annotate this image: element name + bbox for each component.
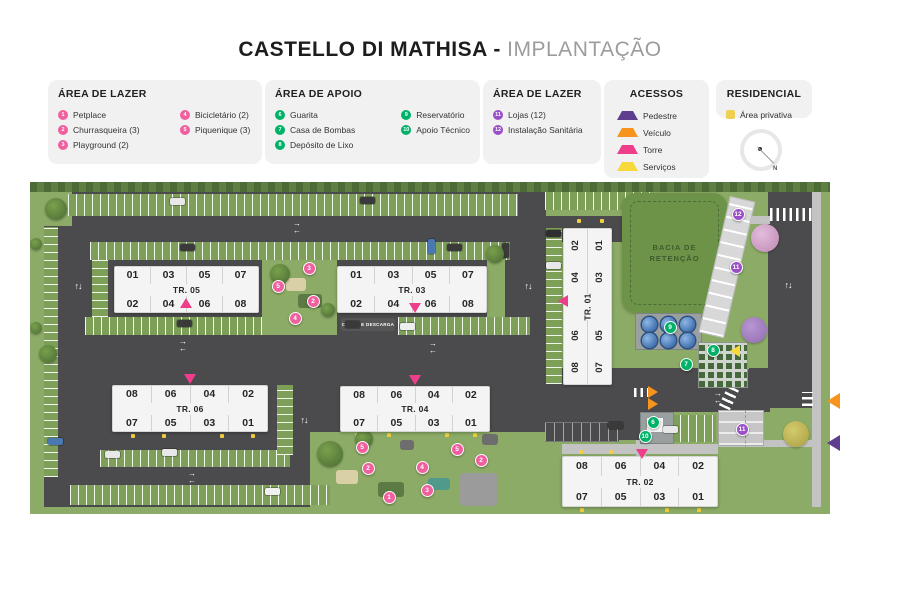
page: { "title": {"main": "CASTELLO DI MATHISA… [0,0,900,600]
car [447,244,462,251]
unit-cell: 06 [187,296,223,313]
legend-title: ÁREA DE APOIO [275,88,470,100]
parking-row [85,317,262,335]
legend-items: 1Petplace2Churrasqueira (3)3Playground (… [58,107,252,152]
legend-item-label: Pedestre [643,111,677,121]
parking-row [398,317,530,335]
building-label: TR. 05 [115,284,258,296]
car [48,438,63,445]
car [105,451,120,458]
unit-cell: 06 [602,457,641,476]
legend-item: Torre [614,141,699,158]
legend-column: 1Petplace2Churrasqueira (3)3Playground (… [58,107,176,152]
legend-item-label: Reservatório [416,110,464,120]
access-veiculo-triangle [648,386,658,398]
legend-number-badge: 6 [275,110,285,120]
access-torre-triangle [409,303,421,313]
unit-cell: 04 [641,457,680,476]
legend-item-label: Churrasqueira (3) [73,125,140,135]
unit-cell: 01 [229,415,267,432]
map-marker-10: 10 [639,430,652,443]
service-crates [698,342,748,388]
unit-cell: 05 [602,488,641,507]
legend-column: 4Bicicletário (2)5Piquenique (3) [180,107,250,152]
unit-cell: 06 [152,386,191,403]
map-marker-8: 8 [707,344,720,357]
map-marker-5: 5 [451,443,464,456]
legend-item-label: Piquenique (3) [195,125,250,135]
crosswalk [802,392,813,406]
parking-row [100,450,290,467]
legend-item: Pedestre [614,107,699,124]
legend-item-label: Torre [643,145,662,155]
title-separator: - [487,38,507,61]
road-direction-arrow: →← [289,221,305,235]
unit-cell: 07 [341,415,378,431]
tree [783,421,809,447]
unit-cell: 02 [679,457,717,476]
map-marker-9: 9 [664,321,677,334]
sidewalk [812,182,821,514]
tree [39,345,57,363]
unit-cell: 08 [450,296,486,313]
legend-item-label: Playground (2) [73,140,129,150]
unit-cell: 01 [115,267,151,284]
building-label: TR. 03 [338,284,486,296]
page-title: CASTELLO DI MATHISA - IMPLANTAÇÃO [0,38,900,62]
legend-number-badge: 10 [401,125,411,135]
legend-area-de-apoio: ÁREA DE APOIO 6Guarita7Casa de Bombas8De… [265,80,480,164]
car [162,449,177,456]
legend-number-badge: 12 [493,125,503,135]
unit-cell: 08 [223,296,258,313]
unit-entry-dot [697,508,701,512]
map-marker-7: 7 [680,358,693,371]
building-row-top: 01030507 [338,267,486,284]
unit-number: 01 [594,240,605,251]
tree [45,198,67,220]
car [180,244,195,251]
legend-item-label: Área privativa [740,110,792,120]
unit-entry-dot [600,219,604,223]
parking-row [92,260,108,317]
building-row: 0403 [564,261,611,293]
road-direction-arrow: →← [425,341,441,355]
access-torre-triangle [409,375,421,385]
basin-label-line1: BACIA DE [653,242,697,253]
access-triangle-icon [617,128,638,137]
unit-entry-dot [445,433,449,437]
unit-cell: 03 [375,267,412,284]
map-marker-12: 12 [732,208,745,221]
car [360,197,375,204]
unit-entry-dot [473,433,477,437]
lawn [30,507,830,514]
building-tr04: 08060402TR. 0407050301 [340,386,490,432]
unit-number: 05 [594,330,605,341]
unit-cell: 05 [152,415,191,432]
legend-item-label: Bicicletário (2) [195,110,249,120]
road-direction-arrow: ↑↓ [70,282,86,291]
legend-number-badge: 3 [58,140,68,150]
parking-row [277,385,293,455]
legend-item-label: Petplace [73,110,106,120]
unit-cell: 08 [563,457,602,476]
legend-item: 12Instalação Sanitária [493,122,591,137]
legend-item: Serviços [614,158,699,175]
legend-column: 6Guarita7Casa de Bombas8Depósito de Lixo [275,107,397,152]
building-label: TR. 02 [563,476,717,488]
tree [486,245,504,263]
map-marker-4: 4 [416,461,429,474]
legend-area-de-lazer: ÁREA DE LAZER 1Petplace2Churrasqueira (3… [48,80,262,164]
car [400,323,415,330]
edge-access-veiculo-triangle [827,393,840,409]
car [546,262,561,269]
area-privativa-swatch [726,110,735,119]
legend-number-badge: 7 [275,125,285,135]
unit-entry-dot [131,434,135,438]
access-triangle-icon [617,145,638,154]
tree [741,317,767,343]
access-torre-triangle [184,374,196,384]
legend-number-badge: 11 [493,110,503,120]
map-marker-2: 2 [362,462,375,475]
car [428,239,435,254]
road-direction-arrow: ↑↓ [296,416,312,425]
map-marker-5: 5 [356,441,369,454]
leisure-item [482,434,498,445]
legend-item-label: Guarita [290,110,318,120]
unit-cell: 01 [453,415,489,431]
parking-row [68,194,518,216]
unit-cell: 03 [641,488,680,507]
legend-area-de-lazer-2: ÁREA DE LAZER 11Lojas (12)12Instalação S… [483,80,601,164]
access-veiculo-triangle [648,398,658,410]
unit-number: 04 [570,272,581,283]
legend-items: 11Lojas (12)12Instalação Sanitária [493,107,591,137]
unit-cell: 02 [115,296,151,313]
tree [30,238,42,250]
unit-entry-dot [580,508,584,512]
title-subtitle: IMPLANTAÇÃO [507,38,661,61]
unit-entry-dot [577,219,581,223]
road-direction-arrow: ↑↓ [520,282,536,291]
building-label: TR. 01 [564,294,611,320]
car [265,488,280,495]
unit-cell: 08 [113,386,152,403]
legend-number-badge: 8 [275,140,285,150]
building-row-top: 08060402 [563,457,717,476]
legend-item: 11Lojas (12) [493,107,591,122]
unit-entry-dot [220,434,224,438]
building-row: 0201 [564,229,611,261]
unit-number: 07 [594,363,605,374]
unit-cell: 05 [413,267,450,284]
legend-items: PedestreVeículoTorreServiços [614,107,699,175]
unit-cell: 05 [378,415,415,431]
legend-item: 5Piquenique (3) [180,122,250,137]
road-direction-arrow: →← [175,339,191,353]
water-tank [661,333,676,348]
tree [30,322,42,334]
legend-item: 10Apoio Técnico [401,122,470,137]
legend-item-label: Instalação Sanitária [508,125,583,135]
building-tr01: 02010403TR. 0106050807 [563,228,612,385]
legend-item: 7Casa de Bombas [275,122,397,137]
building-label-text: TR. 01 [583,293,593,320]
legend-title: ACESSOS [614,88,699,100]
legend-title: RESIDENCIAL [726,88,802,100]
map-marker-11: 11 [730,261,743,274]
building-row-bottom: 07050301 [341,415,489,431]
legend-item: 2Churrasqueira (3) [58,122,176,137]
unit-cell: 04 [564,261,588,293]
leisure-item [336,470,358,484]
unit-cell: 02 [453,387,489,403]
access-triangle-icon [617,111,638,120]
legend-item: 9Reservatório [401,107,470,122]
water-tank [642,333,657,348]
unit-entry-dot [162,434,166,438]
tree [321,303,335,317]
unit-cell: 02 [229,386,267,403]
road-direction-arrow: →← [184,471,200,485]
legend-item: Veículo [614,124,699,141]
unit-cell: 05 [187,267,223,284]
unit-cell: 03 [191,415,230,432]
map-marker-1: 1 [383,491,396,504]
water-tank [680,333,695,348]
unit-cell: 02 [564,229,588,261]
tree [751,224,779,252]
road-direction-arrow: →← [710,391,726,405]
unit-cell: 04 [375,296,412,313]
access-triangle-icon [617,162,638,171]
unit-cell: 07 [588,352,611,384]
legend-items: 6Guarita7Casa de Bombas8Depósito de Lixo… [275,107,470,152]
building-label: TR. 06 [113,403,267,415]
legend-item: 3Playground (2) [58,137,176,152]
unit-cell: 03 [416,415,453,431]
legend-item-label: Depósito de Lixo [290,140,353,150]
site-plan-map: BACIA DERETENÇÃOCARGA E DESCARGA01030507… [30,182,830,514]
parking-row [672,415,716,442]
unit-cell: 03 [151,267,187,284]
legend-residencial: RESIDENCIAL Área privativa [716,80,812,118]
legend-title: ÁREA DE LAZER [493,88,591,100]
legend-number-badge: 9 [401,110,411,120]
building-row-top: 08060402 [341,387,489,403]
tree [317,441,343,467]
access-torre-triangle [558,295,568,307]
leisure-item [400,440,414,450]
project-name: CASTELLO DI MATHISA [238,38,487,61]
building-row-top: 08060402 [113,386,267,403]
unit-entry-dot [251,434,255,438]
legend-item-label: Apoio Técnico [416,125,470,135]
unit-cell: 06 [378,387,415,403]
leisure-item [460,473,497,506]
legend-number-badge: 1 [58,110,68,120]
map-marker-2: 2 [475,454,488,467]
car [608,422,623,429]
edge-access-pedestre-triangle [827,435,840,451]
basin-label-line2: RETENÇÃO [649,253,699,264]
legend-number-badge: 2 [58,125,68,135]
unit-cell: 01 [679,488,717,507]
legend-item-label: Casa de Bombas [290,125,355,135]
legend-item: 1Petplace [58,107,176,122]
legend-item: 8Depósito de Lixo [275,137,397,152]
building-row: 0605 [564,320,611,352]
access-torre-triangle [180,298,192,308]
legend-column: 11Lojas (12)12Instalação Sanitária [493,107,591,137]
unit-cell: 07 [450,267,486,284]
unit-cell: 07 [113,415,152,432]
legend-item: 4Bicicletário (2) [180,107,250,122]
legend-item-label: Veículo [643,128,671,138]
tree-hedge [30,182,830,192]
unit-cell: 03 [588,261,611,293]
car [663,426,678,433]
crosswalk [770,208,812,221]
water-tank [680,317,695,332]
unit-entry-dot [387,433,391,437]
legend-number-badge: 5 [180,125,190,135]
water-tank [642,317,657,332]
car [177,320,192,327]
building-tr06: 08060402TR. 0607050301 [112,385,268,432]
legend-item-label: Serviços [643,162,676,172]
unit-entry-dot [609,450,613,454]
car [170,198,185,205]
unit-cell: 05 [588,320,611,352]
building-tr02: 08060402TR. 0207050301 [562,456,718,507]
building-row-bottom: 07050301 [113,415,267,432]
map-marker-11: 11 [736,423,749,436]
map-marker-4: 4 [289,312,302,325]
unit-cell: 02 [338,296,375,313]
building-label: TR. 04 [341,403,489,415]
unit-cell: 07 [563,488,602,507]
access-torre-triangle [636,449,648,459]
parking-row [70,485,330,505]
map-marker-3: 3 [303,262,316,275]
compass-north-label: N [773,166,777,172]
legend-item: 6Guarita [275,107,397,122]
unit-cell: 06 [564,320,588,352]
building-row-bottom: 07050301 [563,488,717,507]
legend-item: Área privativa [726,107,802,122]
unit-cell: 08 [564,352,588,384]
legend-title: ÁREA DE LAZER [58,88,252,100]
unit-number: 08 [570,363,581,374]
legend-number-badge: 4 [180,110,190,120]
unit-cell: 07 [223,267,258,284]
map-marker-5: 5 [272,280,285,293]
road-direction-arrow: ↑↓ [780,281,796,290]
unit-number: 03 [594,272,605,283]
building-row-top: 01030507 [115,267,258,284]
leisure-item [286,278,306,291]
unit-cell: 01 [338,267,375,284]
legend-column: 9Reservatório10Apoio Técnico [401,107,470,152]
unit-cell: 08 [341,387,378,403]
map-marker-6: 6 [647,416,660,429]
unit-cell: 01 [588,229,611,261]
legend-acessos: ACESSOS PedestreVeículoTorreServiços [604,80,709,178]
unit-entry-dot [665,508,669,512]
building-row: 0807 [564,352,611,384]
car [345,321,360,328]
car [546,230,561,237]
unit-cell: 04 [191,386,230,403]
access-servicos-triangle [730,345,740,357]
map-marker-3: 3 [421,484,434,497]
unit-cell: 04 [416,387,453,403]
map-marker-2: 2 [307,295,320,308]
unit-entry-dot [579,450,583,454]
unit-number: 06 [570,330,581,341]
unit-number: 02 [570,240,581,251]
legend-item-label: Lojas (12) [508,110,546,120]
